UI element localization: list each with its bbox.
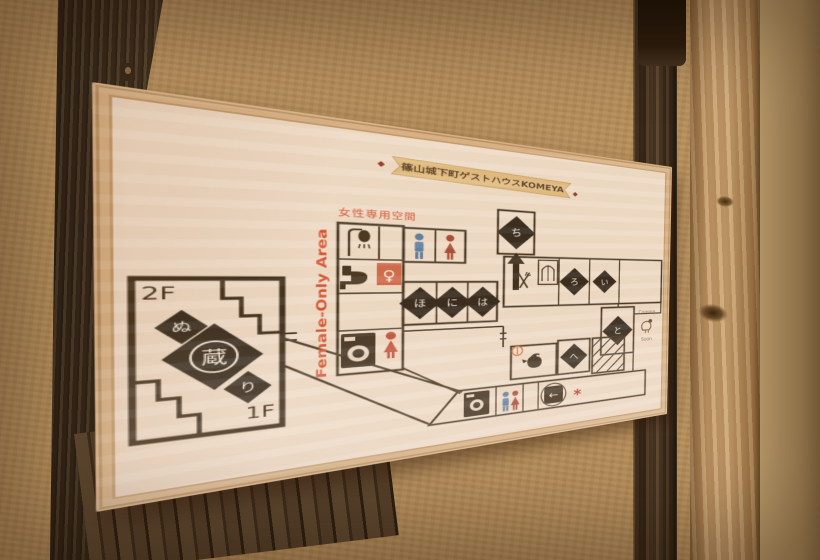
room-label-ro: ろ [570,277,579,287]
svg-text:←: ← [549,388,559,401]
coming-soon-top: Coming [639,309,656,315]
star-marker: * [573,386,581,403]
female-symbol-icon: ♀ [382,268,396,284]
female-area-label-en: Female-Only Area [314,228,331,379]
washing-machine-icon [464,390,490,417]
right-wall-section [756,0,820,560]
room-label-ha: は [477,297,488,308]
logo-char-nu: ぬ [171,320,192,336]
rail-bracket [638,0,686,66]
room-label-he: へ [569,351,578,362]
room-label-to: と [613,326,622,336]
room-label-ni: に [446,297,458,309]
frame-hanger-tab [121,63,135,81]
room-label-chi: ち [511,227,522,239]
washing-machine-icon [341,333,376,369]
logo-char-ri: り [239,380,257,396]
right-wood-post [690,0,760,560]
photo-scene: 篠山城下町ゲストハウスKOMEYA 2F 1F ぬ 蔵 り [0,0,820,560]
room-label-i: い [601,278,609,287]
room-label-ho: ほ [414,298,427,310]
coming-soon-bottom: Soon [641,336,652,342]
floor-label-2f: 2F [141,283,176,304]
floor-label-1f: 1F [245,401,274,423]
logo-char-kura: 蔵 [201,347,227,369]
